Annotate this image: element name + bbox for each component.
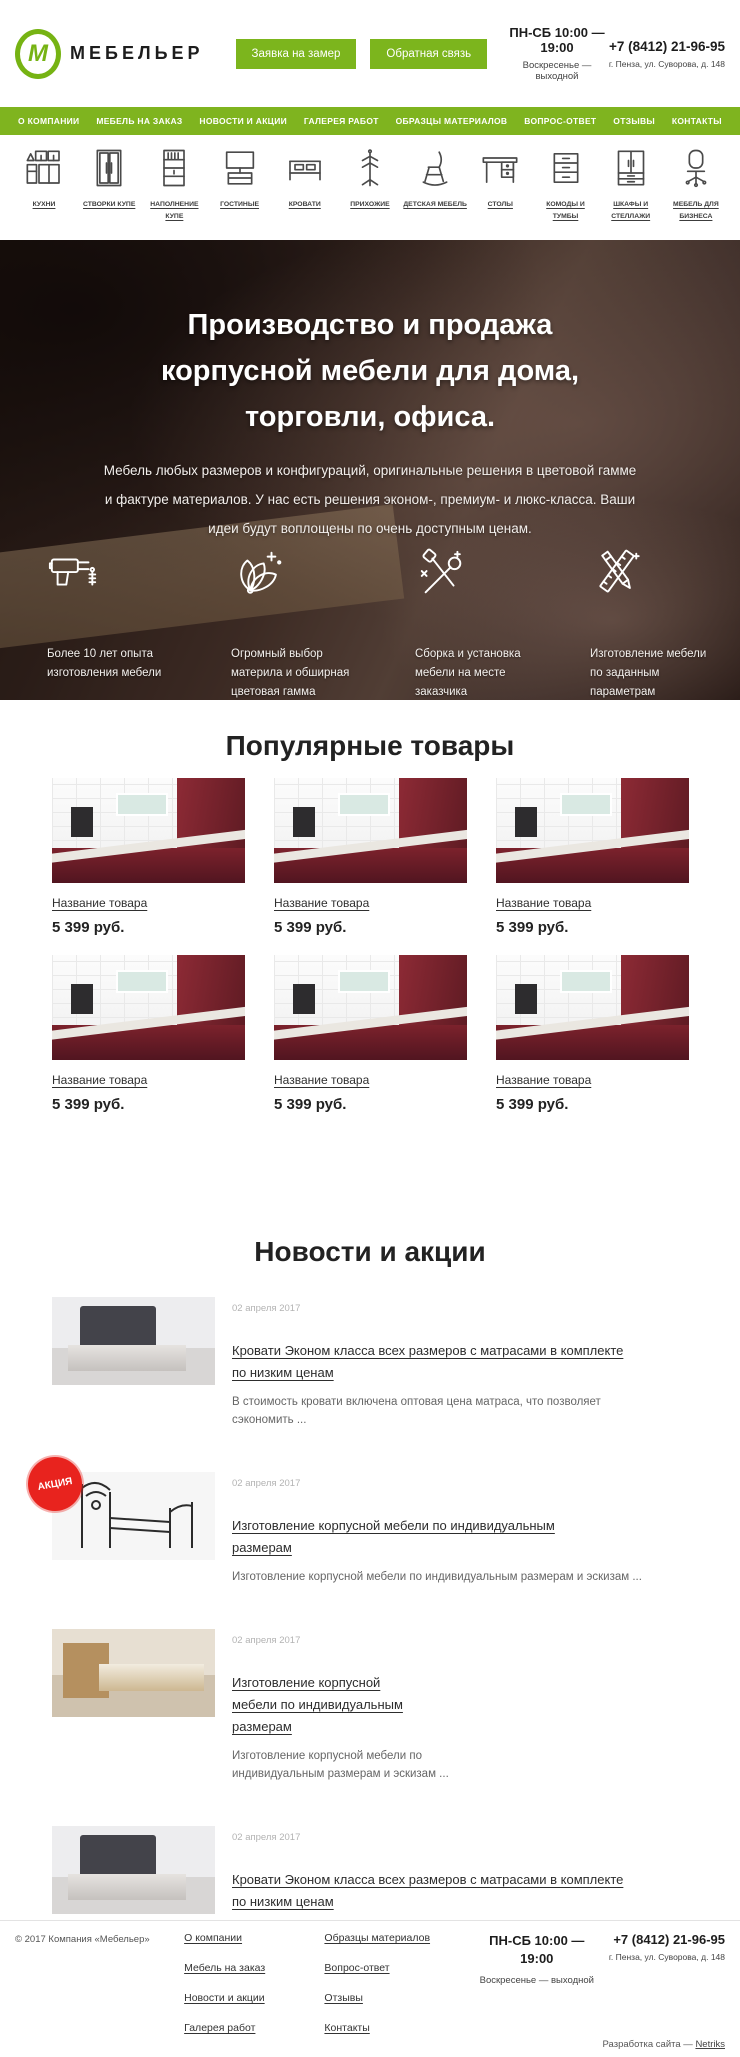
footer-address: г. Пенза, ул. Суворова, д. 148 — [609, 1952, 725, 1962]
sliding-doors-icon — [89, 147, 129, 189]
category-living-rooms[interactable]: ГОСТИНЫЕ — [208, 147, 272, 240]
product-card: Название товара 5 399 руб. — [52, 955, 245, 1113]
product-price: 5 399 руб. — [52, 1096, 245, 1113]
feature-text: Огромный выбор материла и обширная цвето… — [231, 645, 363, 700]
product-price: 5 399 руб. — [274, 1096, 467, 1113]
feature-text: Изготовление мебели по заданным параметр… — [590, 645, 722, 700]
category-strip: КУХНИ СТВОРКИ КУПЕ НАПОЛНЕНИЕ КУПЕ ГОСТИ… — [0, 135, 740, 240]
product-price: 5 399 руб. — [496, 1096, 689, 1113]
credits-prefix: Разработка сайта — — [603, 2039, 696, 2050]
working-hours: ПН-СБ 10:00 — 19:00 Воскресенье — выходн… — [505, 25, 609, 82]
product-card: Название товара 5 399 руб. — [274, 955, 467, 1113]
category-label: НАПОЛНЕНИЕ КУПЕ — [142, 199, 206, 222]
feature-assembly: Сборка и установка мебели на месте заказ… — [415, 546, 590, 700]
category-label: ГОСТИНЫЕ — [208, 199, 272, 211]
phone-number: +7 (8412) 21-96-95 — [609, 39, 725, 54]
product-name-link[interactable]: Название товара — [274, 896, 369, 910]
drawers-icon — [546, 147, 586, 189]
footer-hours-main: ПН-СБ 10:00 — 19:00 — [478, 1932, 596, 1968]
news-title-link[interactable]: Изготовление корпусной мебели по индивид… — [232, 1515, 580, 1559]
category-wardrobe-filling[interactable]: НАПОЛНЕНИЕ КУПЕ — [142, 147, 206, 240]
office-chair-icon — [676, 147, 716, 189]
news-item: 02 апреля 2017 Изготовление корпусной ме… — [52, 1626, 700, 1783]
product-name-link[interactable]: Название товара — [496, 1073, 591, 1087]
category-label: КУХНИ — [12, 199, 76, 211]
header-contact: +7 (8412) 21-96-95 г. Пенза, ул. Суворов… — [609, 39, 725, 69]
popular-products-section: Популярные товары Название товара 5 399 … — [0, 700, 740, 1132]
news-title-link[interactable]: Кровати Эконом класса всех размеров с ма… — [232, 1340, 640, 1384]
feature-materials: Огромный выбор материла и обширная цвето… — [231, 546, 415, 700]
hero-title-line: корпусной мебели для дома, — [0, 348, 740, 394]
footer-link-contacts[interactable]: Контакты — [324, 2022, 464, 2034]
color-palette-icon — [231, 546, 285, 600]
product-image[interactable] — [496, 955, 689, 1060]
coat-rack-icon — [350, 147, 390, 189]
footer-link-materials[interactable]: Образцы материалов — [324, 1932, 464, 1944]
hours-note: Воскресенье — выходной — [505, 60, 609, 82]
category-business-furniture[interactable]: МЕБЕЛЬ ДЛЯ БИЗНЕСА — [664, 147, 728, 240]
product-card: Название товара 5 399 руб. — [274, 778, 467, 936]
footer-link-gallery[interactable]: Галерея работ — [184, 2022, 324, 2034]
category-label: ДЕТСКАЯ МЕБЕЛЬ — [403, 199, 467, 211]
footer-hours-note: Воскресенье — выходной — [465, 1975, 609, 1986]
footer-phone: +7 (8412) 21-96-95 — [609, 1932, 725, 1947]
category-sliding-doors[interactable]: СТВОРКИ КУПЕ — [77, 147, 141, 240]
drill-icon — [47, 546, 101, 600]
product-name-link[interactable]: Название товара — [274, 1073, 369, 1087]
nav-item-contacts[interactable]: КОНТАКТЫ — [672, 116, 722, 126]
news-title-link[interactable]: Кровати Эконом класса всех размеров с ма… — [232, 1869, 640, 1913]
hero-title-line: торговли, офиса. — [0, 394, 740, 440]
news-item: 02 апреля 2017 Кровати Эконом класса все… — [52, 1294, 700, 1429]
category-label: КОМОДЫ И ТУМБЫ — [534, 199, 598, 222]
address: г. Пенза, ул. Суворова, д. 148 — [609, 59, 725, 69]
product-image[interactable] — [496, 778, 689, 883]
category-label: МЕБЕЛЬ ДЛЯ БИЗНЕСА — [664, 199, 728, 222]
news-image-wood-bed[interactable] — [52, 1629, 215, 1717]
features-row: Более 10 лет опыта изготовления мебели О… — [47, 546, 740, 700]
news-date: 02 апреля 2017 — [232, 1469, 700, 1489]
product-price: 5 399 руб. — [496, 919, 689, 936]
shelving-icon — [154, 147, 194, 189]
logo-letter: М — [28, 40, 48, 68]
news-image-bed[interactable] — [52, 1826, 215, 1914]
product-name-link[interactable]: Название товара — [496, 896, 591, 910]
hours-main: ПН-СБ 10:00 — 19:00 — [505, 25, 609, 55]
header: М МЕБЕЛЬЕР Заявка на замер Обратная связ… — [0, 0, 740, 107]
category-kitchens[interactable]: КУХНИ — [12, 147, 76, 240]
feature-custom-sizes: Изготовление мебели по заданным параметр… — [590, 546, 740, 700]
news-excerpt: Изготовление корпусной мебели по индивид… — [232, 1747, 457, 1783]
kitchen-icon — [24, 147, 64, 189]
news-title-link[interactable]: Изготовление корпусной мебели по индивид… — [232, 1672, 404, 1738]
news-item: АКЦИЯ 02 апреля 2017 Изготовление корпус… — [52, 1469, 700, 1586]
footer: © 2017 Компания «Мебельер» О компании Ме… — [0, 1920, 740, 2057]
brand-name[interactable]: МЕБЕЛЬЕР — [70, 43, 204, 64]
feedback-button[interactable]: Обратная связь — [370, 39, 487, 69]
footer-link-faq[interactable]: Вопрос-ответ — [324, 1962, 464, 1974]
news-date: 02 апреля 2017 — [232, 1294, 700, 1314]
news-title: Новости и акции — [0, 1236, 740, 1268]
category-label: ШКАФЫ И СТЕЛЛАЖИ — [599, 199, 663, 222]
news-excerpt: В стоимость кровати включена оптовая цен… — [232, 1393, 652, 1429]
category-label: СТВОРКИ КУПЕ — [77, 199, 141, 211]
product-image[interactable] — [52, 955, 245, 1060]
popular-title: Популярные товары — [0, 730, 740, 762]
product-price: 5 399 руб. — [52, 919, 245, 936]
wardrobe-icon — [611, 147, 651, 189]
product-image[interactable] — [274, 955, 467, 1060]
tv-stand-icon — [220, 147, 260, 189]
category-beds[interactable]: КРОВАТИ — [273, 147, 337, 240]
footer-link-about[interactable]: О компании — [184, 1932, 324, 1944]
hero-content: Производство и продажа корпусной мебели … — [0, 240, 740, 543]
feature-text: Более 10 лет опыта изготовления мебели — [47, 645, 179, 683]
category-label: КРОВАТИ — [273, 199, 337, 211]
footer-link-reviews[interactable]: Отзывы — [324, 1992, 464, 2004]
site-credits: Разработка сайта — Netriks — [603, 2039, 725, 2050]
hero-subtitle: Мебель любых размеров и конфигураций, ор… — [100, 456, 640, 543]
nav-item-about[interactable]: О КОМПАНИИ — [18, 116, 79, 126]
footer-links-col2: Образцы материалов Вопрос-ответ Отзывы К… — [324, 1932, 464, 2057]
product-name-link[interactable]: Название товара — [52, 896, 147, 910]
news-image-bed[interactable] — [52, 1297, 215, 1385]
news-section: Новости и акции 02 апреля 2017 Кровати Э… — [0, 1132, 740, 1958]
category-kids-furniture[interactable]: ДЕТСКАЯ МЕБЕЛЬ — [403, 147, 467, 240]
news-excerpt: Изготовление корпусной мебели по индивид… — [232, 1568, 652, 1586]
feature-text: Сборка и установка мебели на месте заказ… — [415, 645, 547, 700]
product-grid: Название товара 5 399 руб. Название това… — [52, 778, 740, 1132]
nav-item-gallery[interactable]: ГАЛЕРЕЯ РАБОТ — [304, 116, 379, 126]
news-date: 02 апреля 2017 — [232, 1626, 700, 1646]
request-measure-button[interactable]: Заявка на замер — [236, 39, 357, 69]
product-card: Название товара 5 399 руб. — [496, 955, 689, 1113]
footer-links-col1: О компании Мебель на заказ Новости и акц… — [184, 1932, 324, 2057]
credits-link[interactable]: Netriks — [695, 2039, 725, 2050]
product-image[interactable] — [52, 778, 245, 883]
nav-item-materials[interactable]: ОБРАЗЦЫ МАТЕРИАЛОВ — [396, 116, 508, 126]
tools-icon — [415, 546, 469, 600]
category-hallways[interactable]: ПРИХОЖИЕ — [338, 147, 402, 240]
kids-chair-icon — [415, 147, 455, 189]
category-label: ПРИХОЖИЕ — [338, 199, 402, 211]
main-nav: О КОМПАНИИ МЕБЕЛЬ НА ЗАКАЗ НОВОСТИ И АКЦ… — [0, 107, 740, 135]
bed-icon — [285, 147, 325, 189]
product-card: Название товара 5 399 руб. — [52, 778, 245, 936]
nav-item-custom-furniture[interactable]: МЕБЕЛЬ НА ЗАКАЗ — [96, 116, 182, 126]
copyright: © 2017 Компания «Мебельер» — [15, 1932, 184, 2057]
feature-experience: Более 10 лет опыта изготовления мебели — [47, 546, 231, 700]
category-label: СТОЛЫ — [468, 199, 532, 211]
footer-working-hours: ПН-СБ 10:00 — 19:00 Воскресенье — выходн… — [465, 1932, 609, 2057]
footer-link-custom-furniture[interactable]: Мебель на заказ — [184, 1962, 324, 1974]
category-dressers[interactable]: КОМОДЫ И ТУМБЫ — [534, 147, 598, 240]
hero-title: Производство и продажа корпусной мебели … — [0, 240, 740, 440]
product-card: Название товара 5 399 руб. — [496, 778, 689, 936]
drafting-tools-icon — [590, 546, 644, 600]
brand-logo-icon[interactable]: М — [15, 29, 61, 79]
nav-item-news[interactable]: НОВОСТИ И АКЦИИ — [199, 116, 287, 126]
category-wardrobes[interactable]: ШКАФЫ И СТЕЛЛАЖИ — [599, 147, 663, 240]
footer-link-news[interactable]: Новости и акции — [184, 1992, 324, 2004]
product-name-link[interactable]: Название товара — [52, 1073, 147, 1087]
hero-banner: Производство и продажа корпусной мебели … — [0, 240, 740, 700]
nav-item-faq[interactable]: ВОПРОС-ОТВЕТ — [524, 116, 596, 126]
category-tables[interactable]: СТОЛЫ — [468, 147, 532, 240]
news-date: 02 апреля 2017 — [232, 1823, 700, 1843]
nav-item-reviews[interactable]: ОТЗЫВЫ — [613, 116, 655, 126]
hero-title-line: Производство и продажа — [0, 302, 740, 348]
desk-icon — [480, 147, 520, 189]
product-image[interactable] — [274, 778, 467, 883]
product-price: 5 399 руб. — [274, 919, 467, 936]
